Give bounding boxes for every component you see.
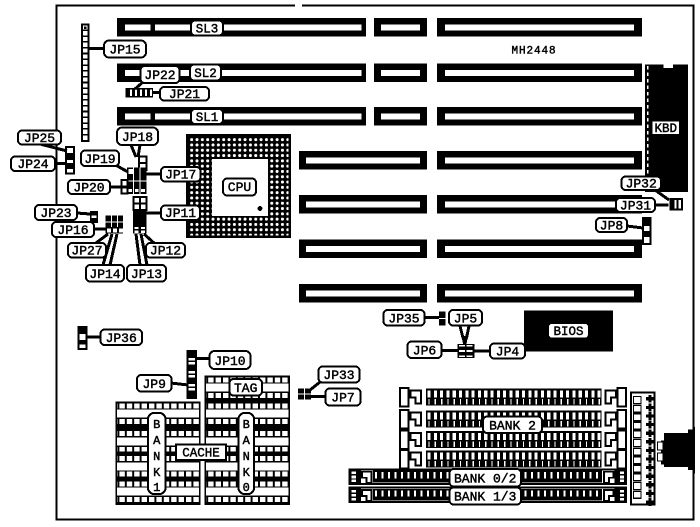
svg-text:JP10: JP10 (214, 354, 245, 369)
svg-text:JP24: JP24 (17, 157, 48, 172)
svg-text:JP18: JP18 (122, 130, 153, 145)
svg-text:SL3: SL3 (196, 23, 219, 37)
svg-text:A: A (243, 434, 251, 448)
svg-text:B: B (153, 418, 160, 432)
svg-text:JP23: JP23 (40, 206, 71, 221)
svg-text:JP32: JP32 (626, 177, 657, 192)
svg-text:JP31: JP31 (620, 199, 651, 214)
svg-text:K: K (243, 466, 251, 480)
svg-text:A: A (153, 434, 161, 448)
svg-text:JP6: JP6 (413, 344, 436, 359)
svg-text:JP22: JP22 (144, 68, 175, 83)
svg-text:JP7: JP7 (331, 391, 354, 406)
svg-text:JP13: JP13 (131, 267, 162, 282)
svg-text:BIOS: BIOS (553, 325, 583, 339)
svg-text:JP33: JP33 (323, 368, 354, 383)
svg-text:JP35: JP35 (388, 312, 419, 327)
svg-text:MH2448: MH2448 (511, 46, 556, 58)
svg-text:B: B (243, 418, 250, 432)
svg-text:JP27: JP27 (71, 244, 102, 259)
svg-text:JP11: JP11 (165, 206, 196, 221)
svg-text:BANK 2: BANK 2 (489, 419, 536, 434)
svg-text:BANK 1/3: BANK 1/3 (454, 490, 516, 505)
svg-text:K: K (153, 466, 161, 480)
svg-text:TAG: TAG (234, 381, 257, 396)
svg-text:JP16: JP16 (57, 223, 88, 238)
svg-text:SL1: SL1 (196, 111, 219, 125)
svg-text:N: N (243, 450, 250, 464)
svg-text:JP8: JP8 (600, 219, 623, 234)
svg-text:1: 1 (153, 481, 160, 495)
svg-text:SL2: SL2 (194, 67, 217, 81)
svg-text:JP15: JP15 (109, 43, 140, 58)
svg-text:CPU: CPU (228, 180, 251, 195)
svg-text:JP19: JP19 (84, 152, 115, 167)
svg-text:JP12: JP12 (150, 244, 181, 259)
svg-text:JP4: JP4 (496, 345, 520, 360)
svg-text:JP9: JP9 (142, 377, 165, 392)
svg-text:JP21: JP21 (169, 87, 200, 102)
svg-text:JP25: JP25 (24, 131, 55, 146)
svg-text:JP5: JP5 (454, 312, 477, 327)
svg-text:JP14: JP14 (89, 267, 120, 282)
svg-text:JP36: JP36 (106, 331, 137, 346)
svg-text:0: 0 (243, 481, 250, 495)
svg-text:JP17: JP17 (165, 168, 196, 183)
svg-text:CACHE: CACHE (182, 447, 220, 461)
svg-text:N: N (153, 450, 160, 464)
svg-text:KBD: KBD (654, 122, 677, 136)
svg-text:JP20: JP20 (73, 181, 104, 196)
svg-text:BANK 0/2: BANK 0/2 (454, 472, 516, 487)
